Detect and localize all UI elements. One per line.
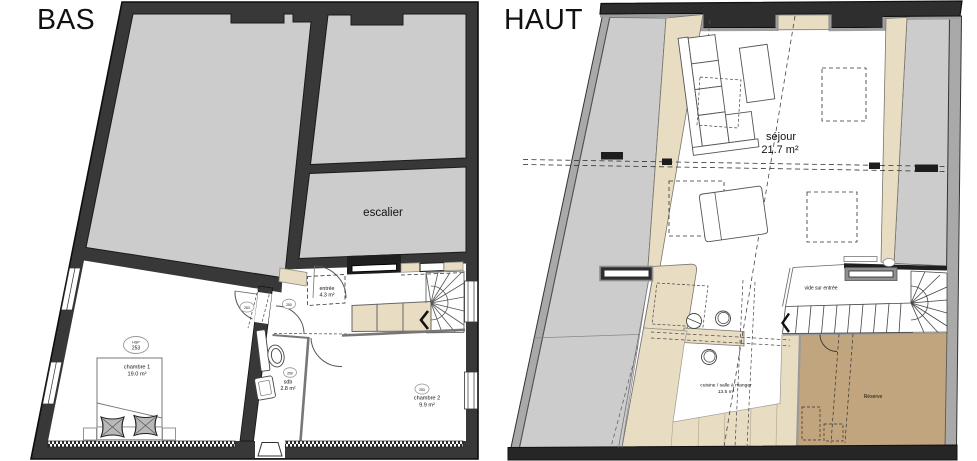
svg-text:séjour: séjour <box>766 131 796 143</box>
svg-text:vide sur entrée: vide sur entrée <box>804 286 837 292</box>
svg-text:cuisine / salle à manger: cuisine / salle à manger <box>700 383 752 389</box>
svg-text:253: 253 <box>419 388 425 392</box>
svg-text:escalier: escalier <box>363 207 403 219</box>
svg-text:sdb: sdb <box>284 380 293 386</box>
svg-text:19.0 m²: 19.0 m² <box>128 372 147 378</box>
svg-text:HSP: HSP <box>132 341 140 345</box>
svg-text:253: 253 <box>132 346 141 352</box>
svg-text:253: 253 <box>244 306 250 310</box>
svg-text:2.8 m²: 2.8 m² <box>280 386 295 392</box>
svg-text:250: 250 <box>286 303 292 307</box>
svg-text:4.3 m²: 4.3 m² <box>319 293 334 299</box>
svg-text:9.9 m²: 9.9 m² <box>419 403 435 409</box>
svg-text:chambre 2: chambre 2 <box>414 396 440 402</box>
svg-text:entrée: entrée <box>319 286 334 292</box>
svg-text:13.5 m²: 13.5 m² <box>718 389 735 395</box>
svg-text:250: 250 <box>287 372 293 376</box>
svg-text:Réserve: Réserve <box>864 394 883 400</box>
svg-text:chambre 1: chambre 1 <box>124 365 150 371</box>
svg-text:21.7 m²: 21.7 m² <box>761 144 799 156</box>
svg-text:HAUT: HAUT <box>504 4 583 36</box>
svg-text:BAS: BAS <box>37 4 95 36</box>
